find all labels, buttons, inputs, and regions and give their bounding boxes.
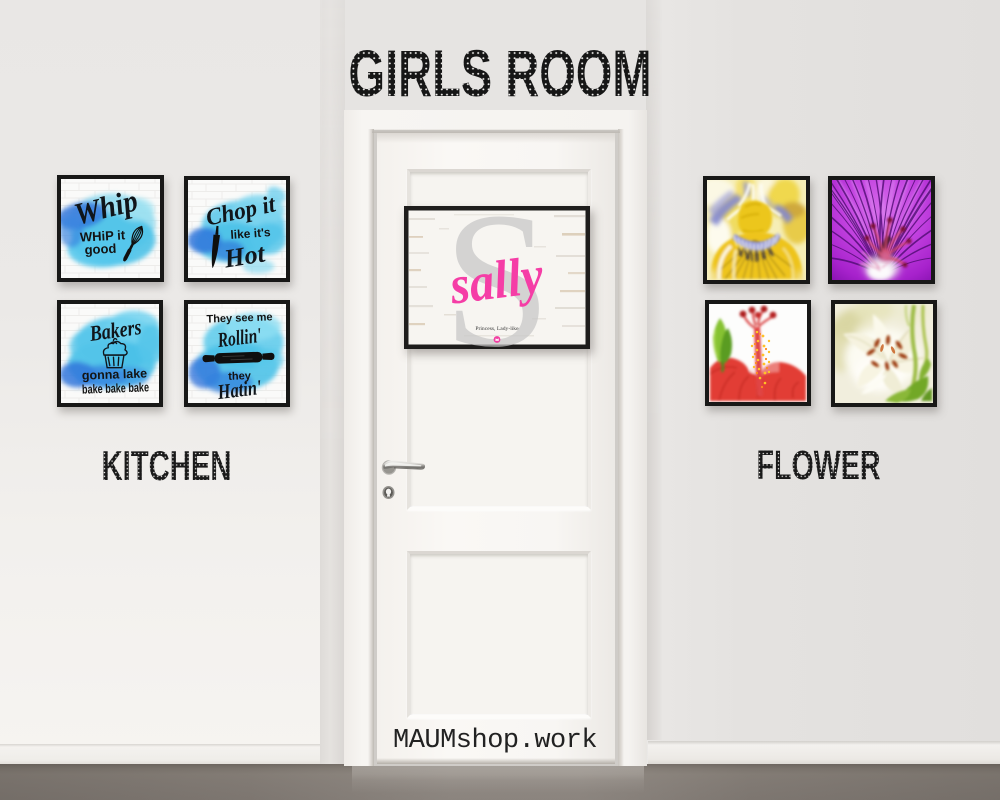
svg-text:bake bake bake: bake bake bake: [82, 380, 149, 396]
svg-text:Princess, Lady-like: Princess, Lady-like: [475, 326, 519, 332]
svg-text:good: good: [84, 241, 117, 258]
svg-text:sally: sally: [446, 244, 547, 315]
svg-text:They see me: They see me: [206, 311, 272, 325]
svg-text:KITCHEN: KITCHEN: [102, 444, 232, 486]
svg-text:GIRLS ROOM: GIRLS ROOM: [349, 40, 652, 104]
svg-text:FLOWER: FLOWER: [757, 444, 881, 486]
